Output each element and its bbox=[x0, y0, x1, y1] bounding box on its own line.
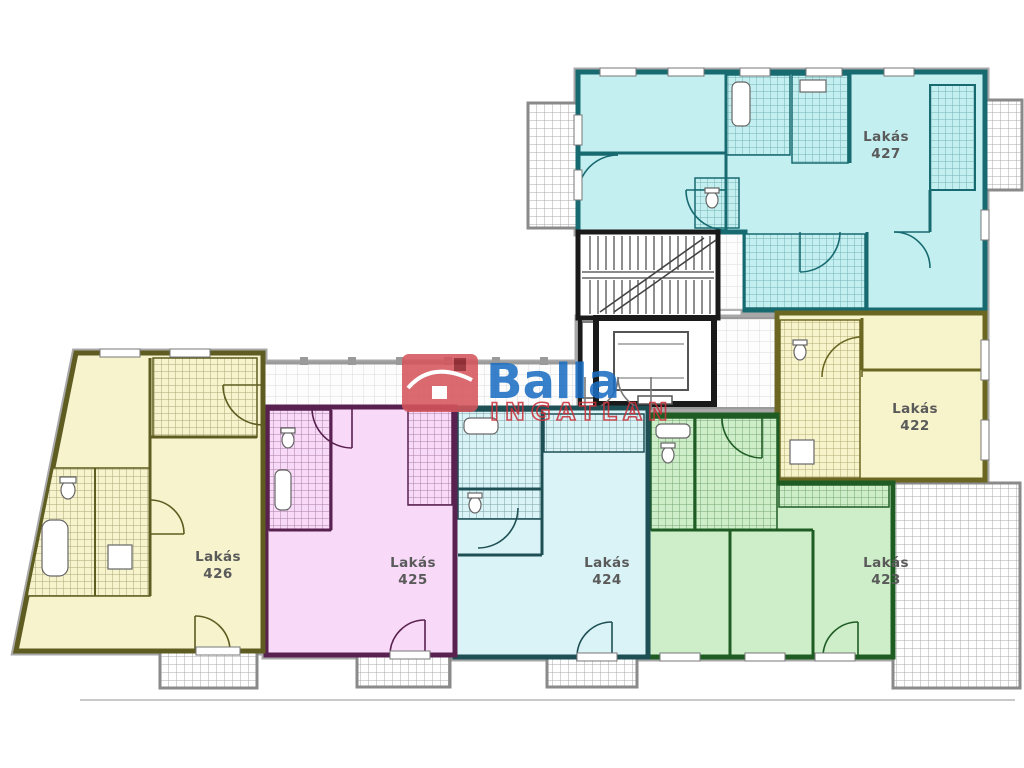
floorplan-svg: Balla INGATLAN bbox=[0, 0, 1024, 768]
label-426-name: Lakás bbox=[195, 549, 241, 565]
label-423-name: Lakás bbox=[863, 555, 909, 571]
label-apartment-423: Lakás 423 bbox=[821, 555, 951, 589]
label-427-name: Lakás bbox=[863, 129, 909, 145]
label-423-number: 423 bbox=[821, 572, 951, 589]
apartment-426 bbox=[16, 353, 263, 651]
label-425-name: Lakás bbox=[390, 555, 436, 571]
label-427-number: 427 bbox=[821, 146, 951, 163]
label-apartment-426: Lakás 426 bbox=[153, 549, 283, 583]
label-apartment-427: Lakás 427 bbox=[821, 129, 951, 163]
label-apartment-422: Lakás 422 bbox=[850, 401, 980, 435]
label-424-name: Lakás bbox=[584, 555, 630, 571]
kitchen-426 bbox=[153, 358, 257, 437]
label-apartment-424: Lakás 424 bbox=[542, 555, 672, 589]
logo-window bbox=[432, 386, 447, 399]
floorplan-page: Balla INGATLAN Lakás 427 Lakás 422 Lakás… bbox=[0, 0, 1024, 768]
label-424-number: 424 bbox=[542, 572, 672, 589]
logo-sub-text: INGATLAN bbox=[490, 398, 674, 426]
apartment-424 bbox=[455, 408, 648, 657]
balcony-427-left bbox=[528, 103, 578, 228]
label-apartment-425: Lakás 425 bbox=[348, 555, 478, 589]
label-425-number: 425 bbox=[348, 572, 478, 589]
apartment-425 bbox=[266, 407, 455, 655]
label-422-name: Lakás bbox=[892, 401, 938, 417]
stair-landing-strip bbox=[718, 232, 745, 310]
stairwell bbox=[578, 232, 718, 318]
kitchen-425 bbox=[408, 410, 452, 505]
logo-chimney bbox=[454, 358, 466, 371]
label-426-number: 426 bbox=[153, 566, 283, 583]
kitchen-423 bbox=[779, 485, 889, 507]
label-422-number: 422 bbox=[850, 418, 980, 435]
apartment-422 bbox=[777, 313, 985, 480]
